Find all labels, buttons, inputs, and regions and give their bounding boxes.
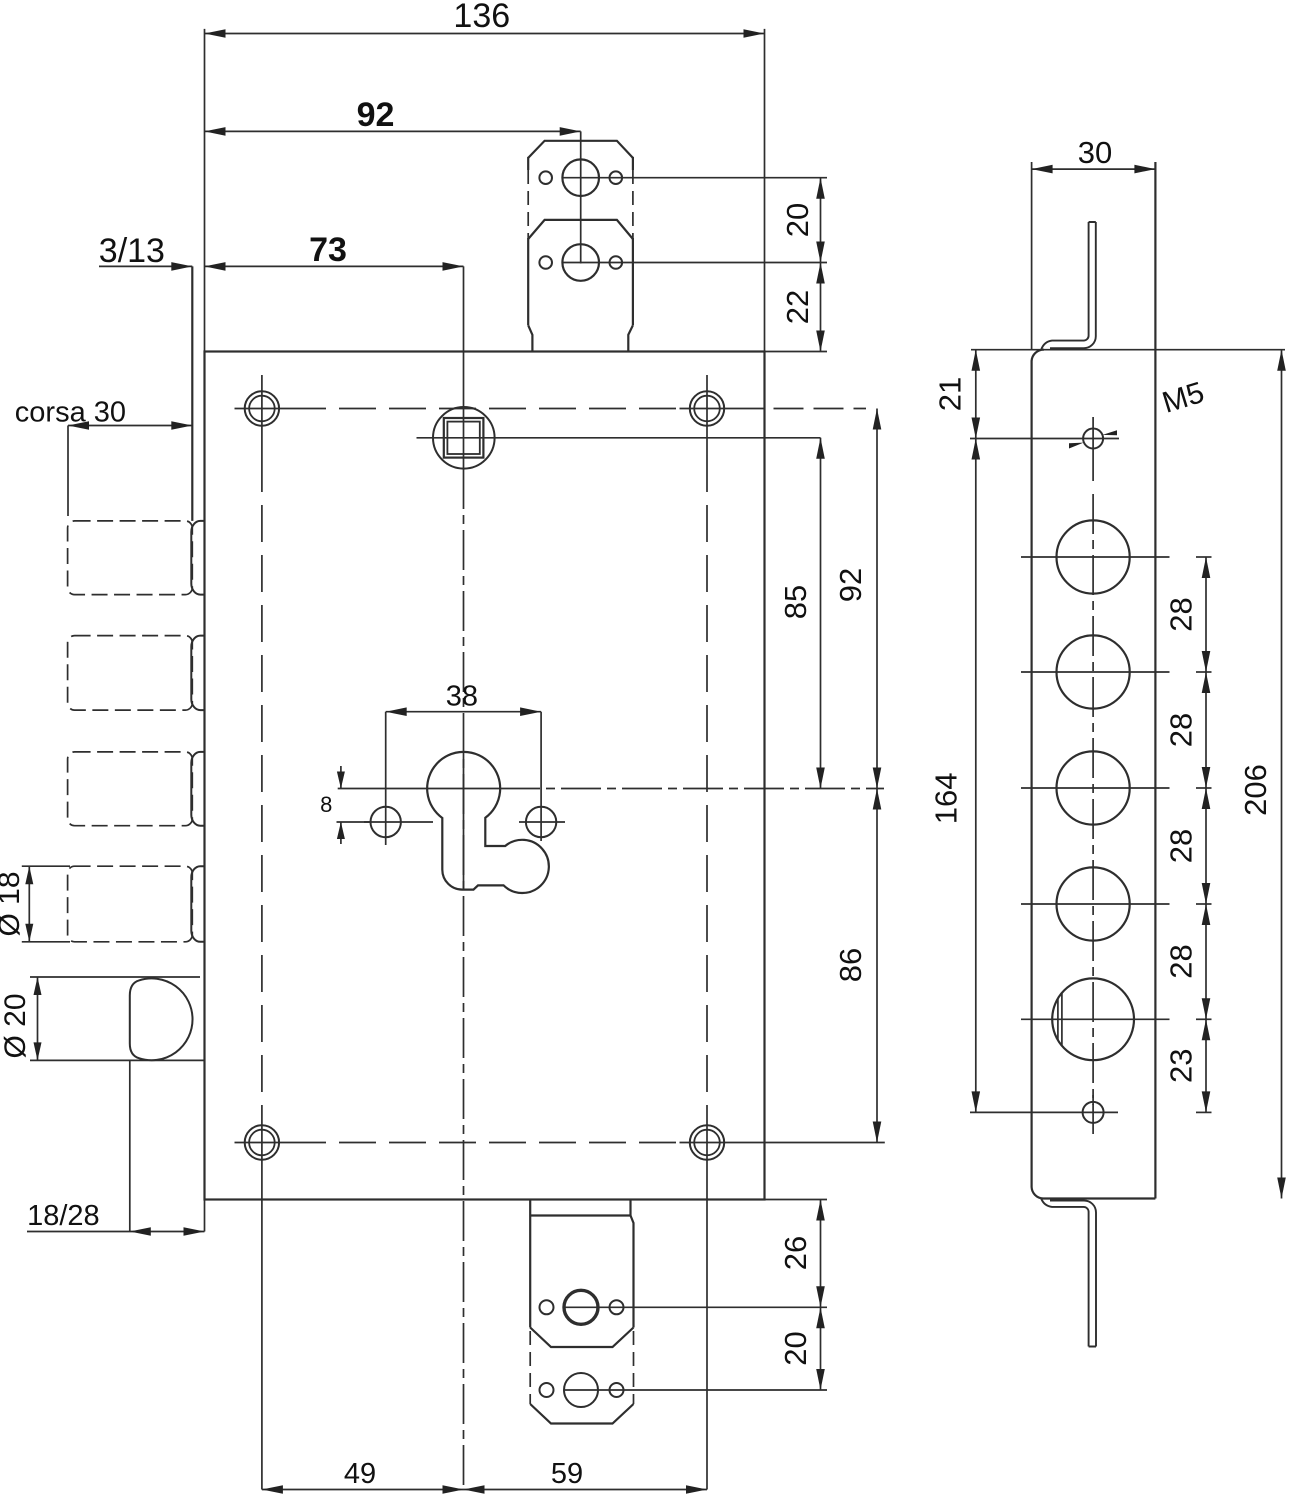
svg-text:Ø 18: Ø 18 bbox=[0, 871, 26, 936]
svg-text:26: 26 bbox=[778, 1236, 813, 1270]
svg-text:206: 206 bbox=[1238, 764, 1273, 816]
svg-text:18/28: 18/28 bbox=[27, 1200, 100, 1232]
svg-text:3/13: 3/13 bbox=[99, 232, 165, 270]
svg-text:28: 28 bbox=[1164, 713, 1199, 747]
svg-text:30: 30 bbox=[1078, 135, 1112, 170]
svg-text:92: 92 bbox=[357, 96, 395, 134]
svg-text:38: 38 bbox=[446, 681, 478, 713]
svg-text:49: 49 bbox=[344, 1458, 376, 1490]
svg-text:59: 59 bbox=[551, 1458, 583, 1490]
svg-text:164: 164 bbox=[929, 773, 964, 825]
svg-text:92: 92 bbox=[833, 568, 868, 602]
svg-text:85: 85 bbox=[778, 585, 813, 619]
svg-text:28: 28 bbox=[1164, 829, 1199, 863]
svg-text:28: 28 bbox=[1164, 944, 1199, 978]
svg-text:86: 86 bbox=[833, 948, 868, 982]
svg-text:73: 73 bbox=[309, 231, 347, 269]
svg-text:8: 8 bbox=[320, 792, 332, 817]
svg-text:28: 28 bbox=[1164, 597, 1199, 631]
svg-text:21: 21 bbox=[933, 377, 968, 411]
svg-text:corsa 30: corsa 30 bbox=[15, 397, 126, 429]
svg-text:20: 20 bbox=[778, 1331, 813, 1365]
svg-text:Ø 20: Ø 20 bbox=[0, 993, 32, 1058]
svg-text:23: 23 bbox=[1164, 1049, 1199, 1083]
svg-text:22: 22 bbox=[780, 290, 815, 324]
svg-text:20: 20 bbox=[780, 203, 815, 237]
svg-text:136: 136 bbox=[453, 0, 510, 35]
